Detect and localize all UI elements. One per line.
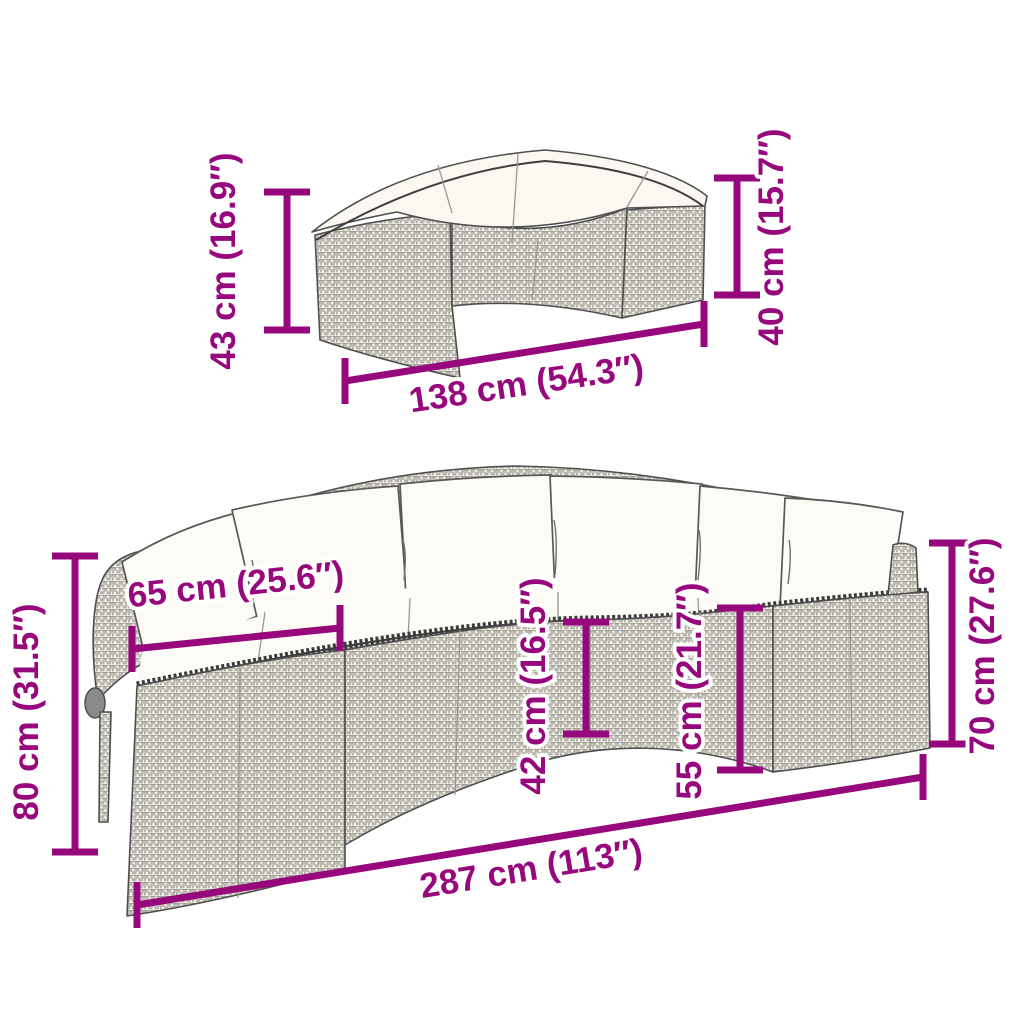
dim-sofa-overall-height-label: 80 cm (31.5″) (7, 603, 46, 820)
dim-sofa-armrest-height-label: 70 cm (27.6″) (963, 537, 1002, 754)
sofa-figure (85, 466, 930, 916)
dim-sofa-armrest-height: 70 cm (27.6″) (929, 537, 1002, 754)
dim-bench-height-left: 43 cm (16.9″) (204, 152, 310, 369)
dim-sofa-seat-height-label: 42 cm (16.5″) (514, 577, 553, 794)
dim-bench-height-left-line (264, 192, 310, 330)
dimension-diagram: 43 cm (16.9″) 40 cm (15.7″) 138 cm (54.3… (0, 0, 1024, 1024)
bench-right-wall (622, 204, 705, 318)
sofa-left-leg (99, 712, 111, 822)
dim-bench-height-right-label: 40 cm (15.7″) (752, 128, 791, 345)
dim-bench-height-right: 40 cm (15.7″) (714, 128, 791, 345)
dim-sofa-back-height-label: 55 cm (21.7″) (670, 582, 709, 799)
bench-figure (312, 150, 707, 378)
diagram-canvas: 43 cm (16.9″) 40 cm (15.7″) 138 cm (54.3… (0, 0, 1024, 1024)
bench-left-wall (315, 213, 460, 378)
sofa-right-armrest (888, 543, 918, 596)
sofa-cushion-6 (780, 498, 903, 608)
dim-bench-height-left-label: 43 cm (16.9″) (204, 152, 243, 369)
